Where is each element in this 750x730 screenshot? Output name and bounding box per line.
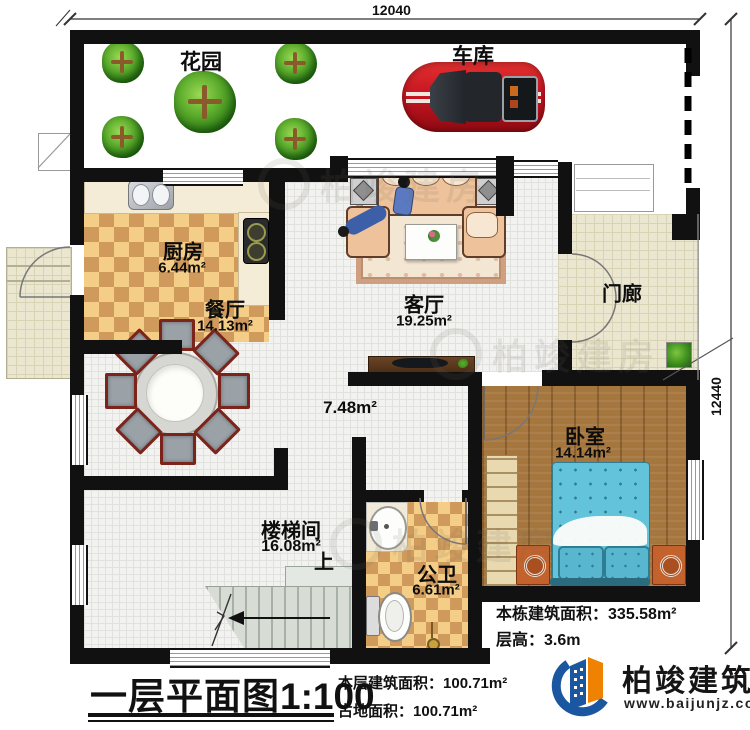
- brand-logo: 柏竣建筑 www.baijunjz.com: [540, 648, 750, 726]
- kitchen-area: 6.44m²: [158, 260, 206, 277]
- dining-chair: [218, 373, 250, 409]
- floor-area-value: 100.71m²: [443, 675, 507, 692]
- dim-right: 12440: [708, 352, 724, 416]
- wall-bedroom-east-upper: [686, 380, 700, 460]
- porch-step-line: [576, 190, 650, 191]
- wall-bathroom-north-b: [462, 490, 468, 502]
- stove-burner: [247, 242, 266, 261]
- wall-living-top-right: [496, 156, 514, 216]
- brand-logo-icon: [540, 648, 622, 724]
- wall-porch-left-upper: [558, 162, 572, 254]
- closet: [486, 455, 518, 587]
- dining-table-top: [146, 364, 204, 422]
- building-area-value: 335.58m²: [608, 606, 677, 623]
- wall-hall-stub: [352, 437, 366, 490]
- stair-west-window: [70, 545, 88, 605]
- kitchen-sink-basin: [132, 184, 150, 206]
- building-area-label: 本栋建筑面积：: [496, 606, 608, 623]
- kitchen-window: [163, 168, 243, 186]
- wall-bottom-right: [330, 648, 490, 664]
- dining-chair: [105, 373, 137, 409]
- bath-sink-drain: [384, 524, 389, 529]
- title-underline-thin: [88, 720, 334, 722]
- floor-area-label: 本层建筑面积：: [338, 675, 443, 692]
- brand-name: 柏竣建筑: [622, 656, 750, 700]
- bedroom-area: 14.14m²: [555, 445, 611, 462]
- living-area: 19.25m²: [396, 313, 452, 330]
- bed-headboard: [550, 578, 650, 586]
- stairs-up-label: 上: [314, 546, 334, 575]
- person-sitting-head: [398, 176, 410, 188]
- living-north-window: [348, 158, 496, 178]
- tree: [275, 118, 317, 160]
- storey-height-value: 3.6m: [544, 632, 580, 649]
- building-area-note: 本栋建筑面积：335.58m²: [496, 600, 677, 624]
- tv: [392, 358, 448, 368]
- nightstand: [652, 545, 686, 585]
- hall-area: 7.48m²: [323, 398, 377, 418]
- title-underline-thick: [88, 713, 334, 717]
- stair-south-window: [170, 648, 330, 668]
- wall-top-right-corner: [686, 44, 700, 76]
- storey-height-label: 层高：: [496, 632, 544, 649]
- wall-right-step: [672, 214, 700, 240]
- bed-pillow: [604, 546, 650, 580]
- wall-bedroom-west: [468, 384, 482, 648]
- coffee-table-flowers: [428, 230, 440, 242]
- porch-plant: [666, 342, 692, 368]
- wall-stair-north: [70, 476, 288, 490]
- plan-title: 一层平面图: [90, 676, 280, 717]
- bathroom-area: 6.61m²: [412, 582, 460, 599]
- wall-bedroom-east-lower: [686, 540, 700, 602]
- floor-area-note: 本层建筑面积：100.71m²: [338, 672, 507, 693]
- porch-step-line: [576, 178, 650, 179]
- armchair-cushion: [466, 212, 498, 238]
- brand-website: www.baijunjz.com: [624, 695, 750, 711]
- bath-sink-faucet: [370, 521, 378, 531]
- garden-label: 花园: [180, 46, 222, 76]
- porch-label: 门廊: [602, 278, 642, 307]
- storey-height-note: 层高：3.6m: [496, 626, 580, 650]
- person-lying-head: [338, 226, 349, 237]
- wall-left-kitchen: [70, 168, 84, 245]
- person-sitting-body: [392, 186, 415, 216]
- wall-left-garden: [70, 44, 84, 168]
- wall-left-bottom: [70, 605, 84, 648]
- dining-area: 14.13m²: [197, 318, 253, 335]
- kitchen-sink-basin: [152, 184, 170, 206]
- tree-large: [174, 71, 236, 133]
- garage-label: 车库: [452, 40, 494, 70]
- dining-west-window: [70, 395, 88, 465]
- car: [402, 62, 545, 132]
- footprint-note: 占地面积：100.71m²: [338, 700, 477, 721]
- stairwell-area: 16.08m²: [261, 538, 321, 556]
- wall-bedroom-north: [542, 370, 700, 386]
- dim-top: 12040: [372, 2, 411, 18]
- ramp-box: [38, 133, 72, 171]
- wall-top: [70, 30, 700, 44]
- plan-title-block: 一层平面图1:100: [90, 666, 375, 720]
- wall-bathroom-north-a: [352, 490, 424, 502]
- car-engine-detail: [510, 100, 518, 108]
- tree: [102, 116, 144, 158]
- wall-kitchen-south: [70, 340, 182, 354]
- wall-porch-left-lower: [558, 340, 572, 372]
- footprint-label: 占地面积：: [338, 703, 413, 720]
- wall-living-top-left: [330, 156, 348, 182]
- patio-divider: [6, 280, 70, 282]
- dining-chair: [160, 433, 196, 465]
- tree: [102, 41, 144, 83]
- toilet-bowl-inner: [385, 600, 404, 632]
- wall-dining-stub: [274, 448, 288, 490]
- porch-step-box: [574, 164, 654, 212]
- patio-divider: [6, 265, 70, 267]
- wall-kitchen-east: [269, 168, 285, 320]
- stove-burner: [247, 223, 266, 242]
- car-engine-detail: [510, 86, 518, 96]
- bedroom-east-window: [686, 460, 704, 540]
- wall-tv: [348, 372, 482, 386]
- tree: [275, 42, 317, 84]
- bed-pillow: [558, 546, 604, 580]
- living-north-window-small: [514, 160, 558, 178]
- side-table-lamp: [350, 178, 377, 205]
- wall-house-top-b: [243, 168, 333, 182]
- floor-drain-stem: [431, 622, 433, 638]
- wall-bottom-left: [70, 648, 170, 664]
- car-roof: [464, 72, 502, 122]
- nightstand: [516, 545, 550, 585]
- wall-bathroom-west: [352, 490, 366, 648]
- footprint-value: 100.71m²: [413, 703, 477, 720]
- car-engine-cover: [502, 76, 538, 122]
